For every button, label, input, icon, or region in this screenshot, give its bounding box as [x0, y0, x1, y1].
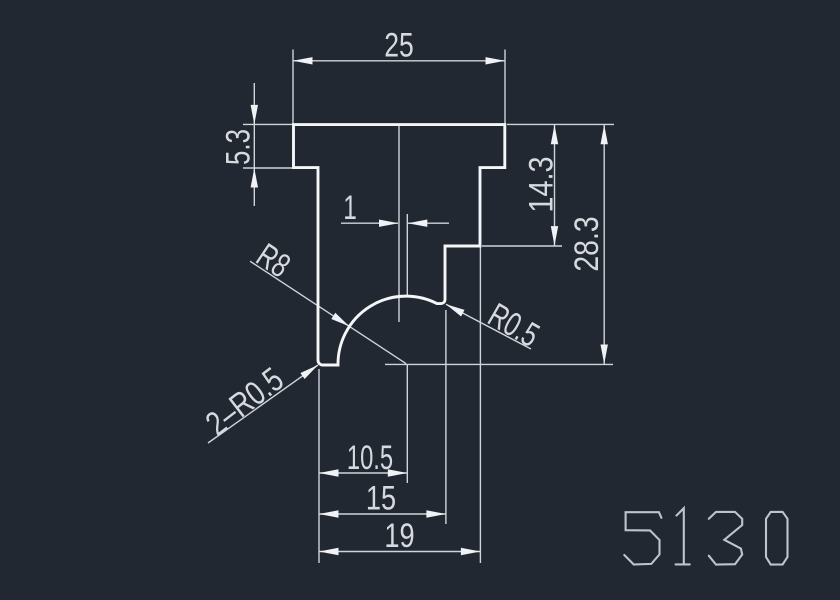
- svg-text:19: 19: [384, 516, 414, 555]
- svg-text:10.5: 10.5: [347, 439, 393, 477]
- svg-text:15: 15: [366, 479, 396, 518]
- svg-text:14.3: 14.3: [521, 156, 560, 212]
- svg-text:1: 1: [343, 189, 357, 227]
- svg-text:5.3: 5.3: [220, 129, 257, 165]
- svg-text:28.3: 28.3: [568, 216, 606, 271]
- svg-text:25: 25: [384, 26, 414, 64]
